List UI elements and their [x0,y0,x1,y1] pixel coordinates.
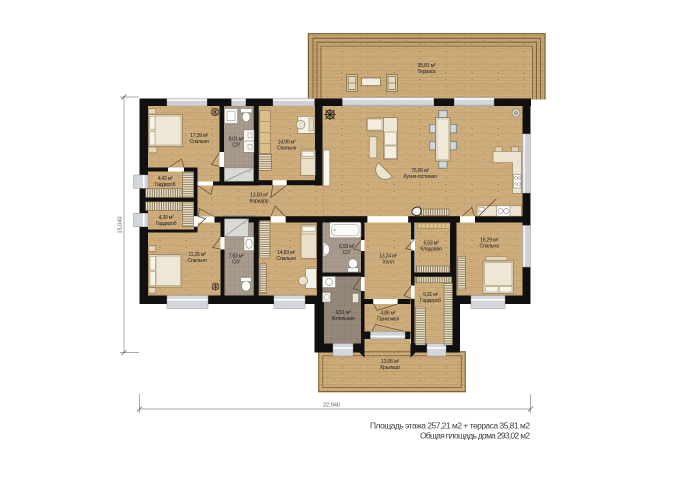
svg-text:13,05 м²Крыльцо: 13,05 м²Крыльцо [380,359,400,371]
svg-text:17,39 м²Спальня: 17,39 м²Спальня [189,133,209,145]
svg-text:Общая площадь дома 293,02 м2: Общая площадь дома 293,02 м2 [420,431,530,441]
svg-text:14,90 м²Спальня: 14,90 м²Спальня [277,140,297,152]
svg-text:4,43 м²Гардероб: 4,43 м²Гардероб [155,176,176,188]
svg-text:16,29 м²Спальня: 16,29 м²Спальня [479,238,499,250]
svg-text:35,81 м²Терраса: 35,81 м²Терраса [417,63,436,75]
svg-text:4,39 м²Гардероб: 4,39 м²Гардероб [156,215,177,227]
svg-text:14,83 м²Спальня: 14,83 м²Спальня [276,250,296,262]
svg-text:Площадь этажа 257,21 м2 + терр: Площадь этажа 257,21 м2 + терраса 35,81 … [370,421,530,431]
svg-text:9,31 м²Гардероб: 9,31 м²Гардероб [420,292,441,304]
svg-text:15,040: 15,040 [118,216,124,233]
svg-text:13,59 м²Коридор: 13,59 м²Коридор [250,193,269,205]
svg-text:11,26 м²Спальня: 11,26 м²Спальня [187,252,207,264]
svg-text:22,940: 22,940 [323,403,340,409]
